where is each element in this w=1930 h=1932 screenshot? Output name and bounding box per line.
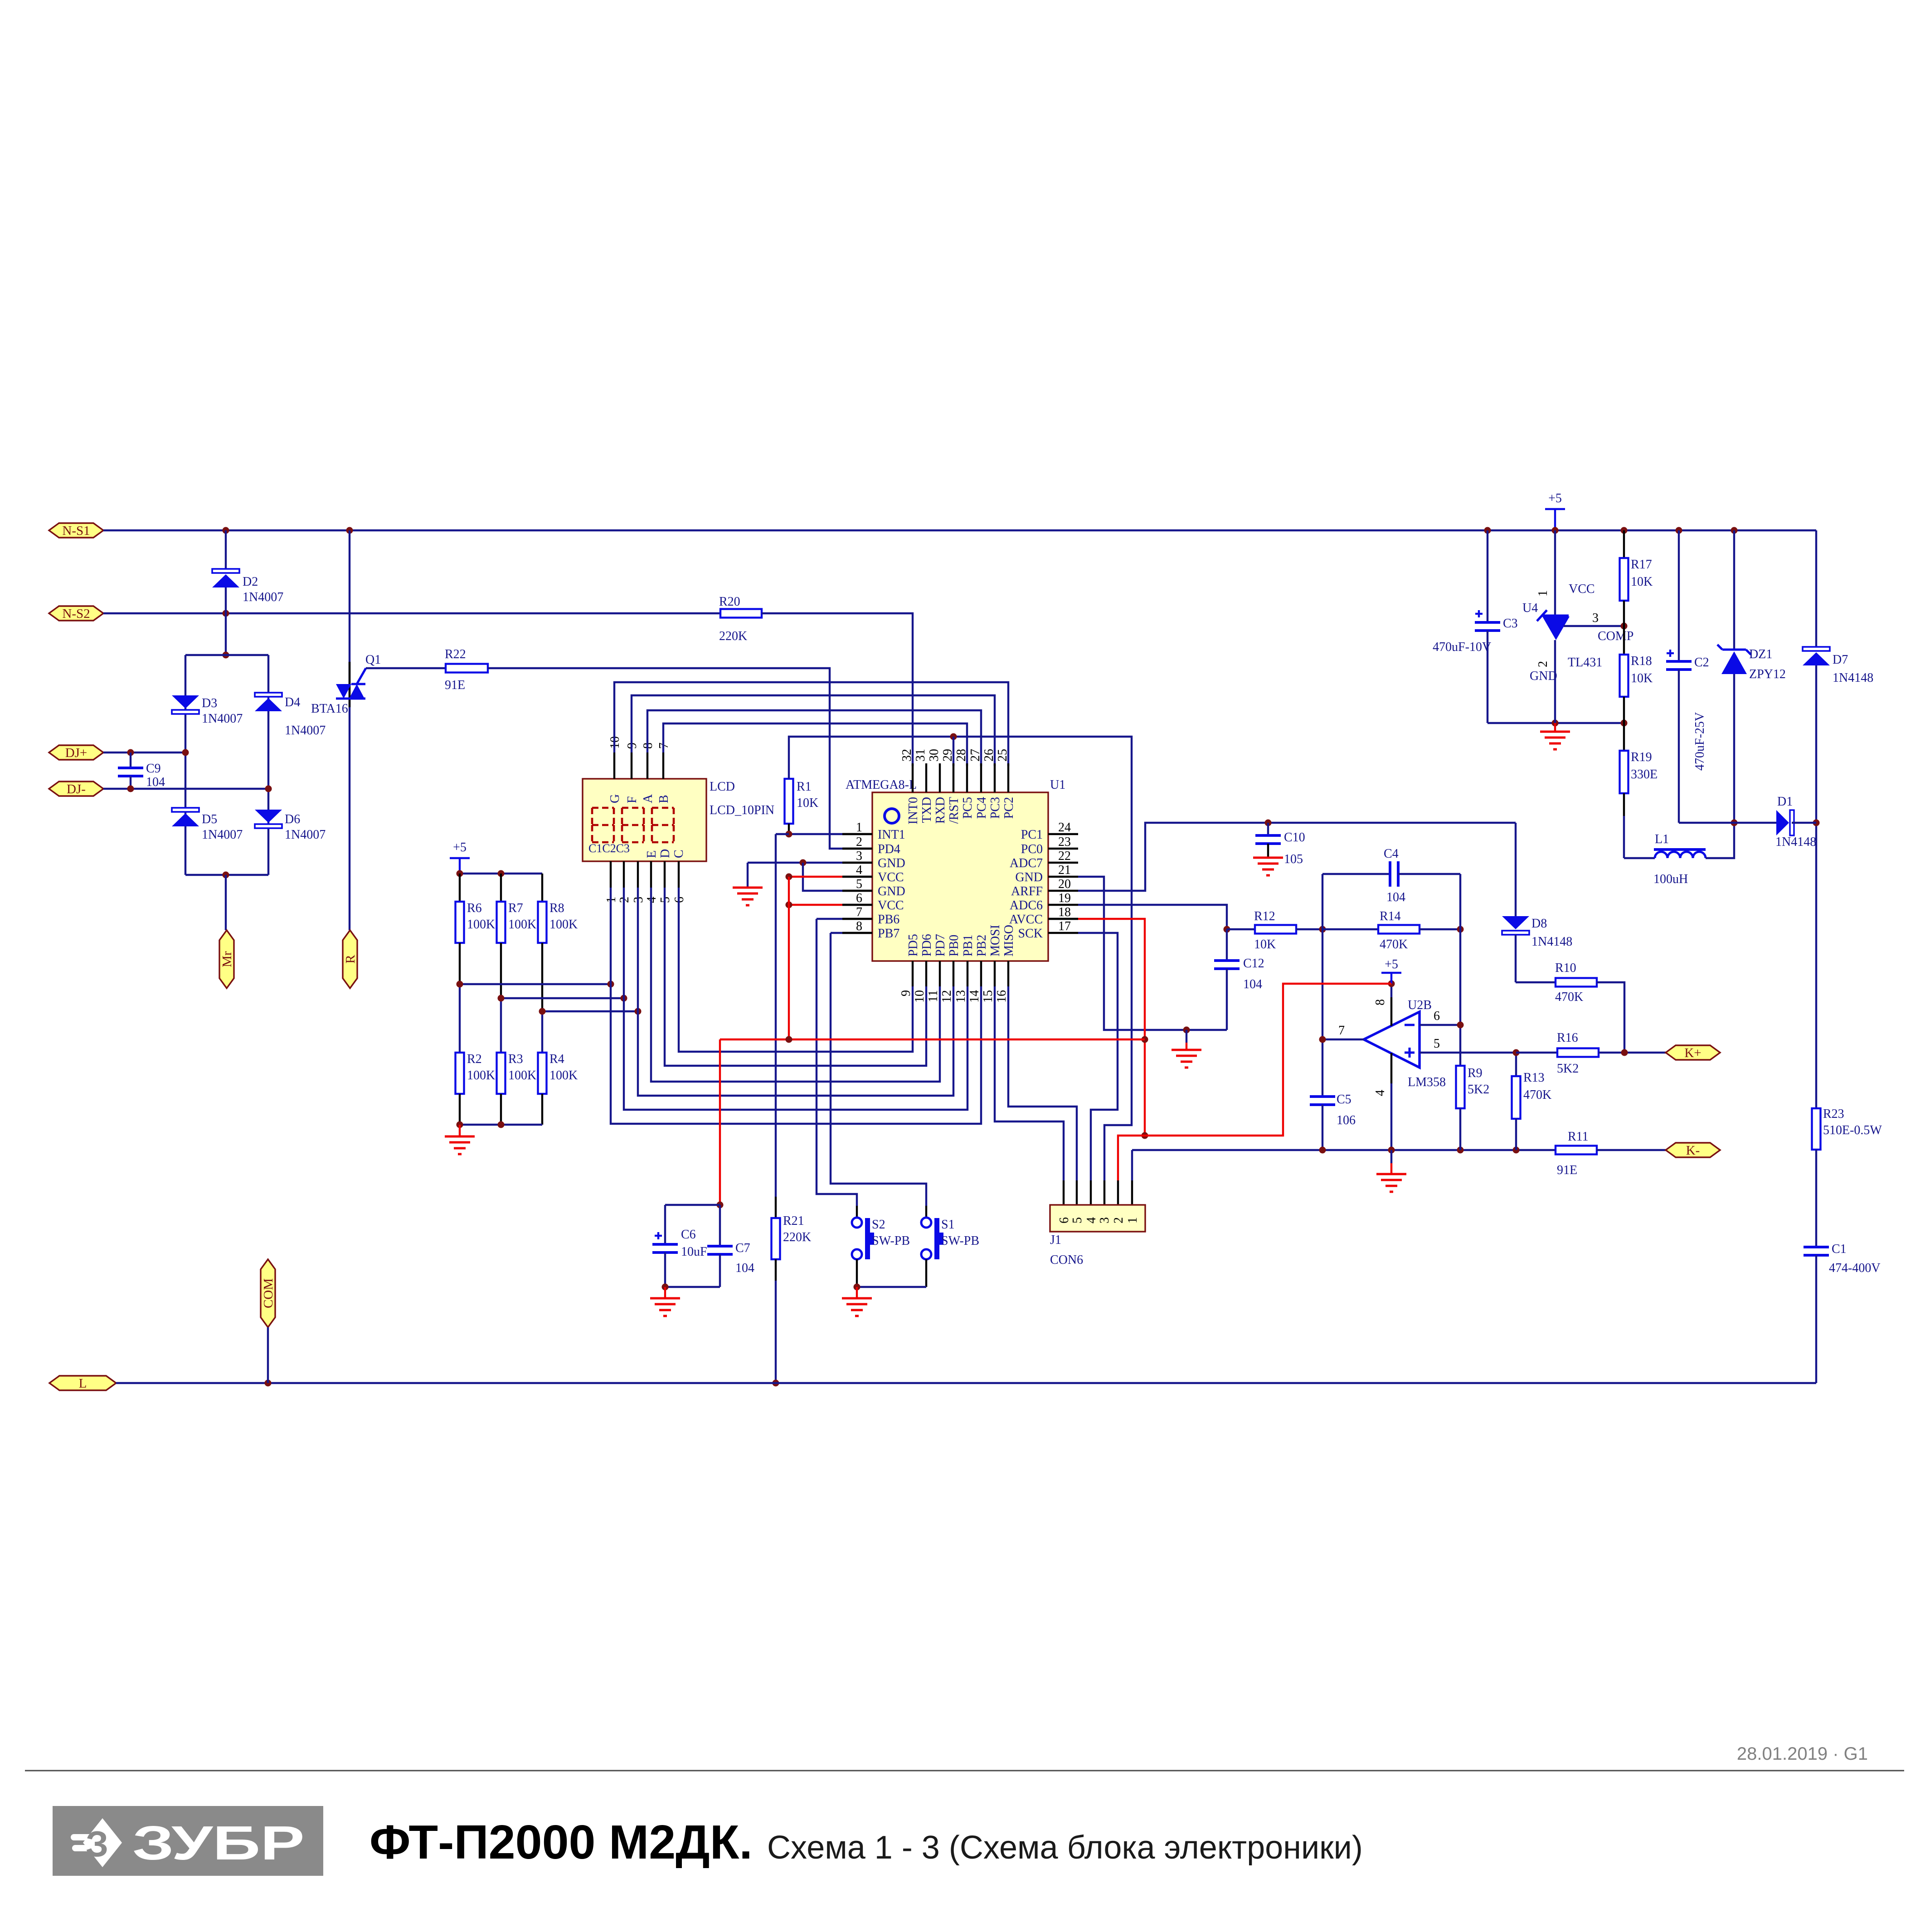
- svg-text:J1: J1: [1050, 1233, 1061, 1247]
- svg-text:ADC7: ADC7: [1010, 856, 1043, 870]
- svg-text:29: 29: [941, 749, 955, 762]
- svg-text:27: 27: [968, 749, 982, 762]
- svg-text:100uH: 100uH: [1653, 872, 1688, 886]
- svg-text:5: 5: [856, 877, 862, 891]
- svg-text:PD5: PD5: [906, 934, 920, 956]
- svg-text:510E-0.5W: 510E-0.5W: [1823, 1123, 1882, 1137]
- svg-text:R11: R11: [1568, 1130, 1589, 1144]
- svg-text:R19: R19: [1631, 750, 1652, 764]
- svg-text:K-: K-: [1686, 1143, 1700, 1158]
- svg-text:R22: R22: [445, 647, 466, 661]
- svg-text:A: A: [641, 794, 655, 803]
- svg-text:220K: 220K: [783, 1230, 811, 1244]
- svg-text:100K: 100K: [467, 1068, 495, 1083]
- svg-text:1N4007: 1N4007: [202, 828, 243, 842]
- svg-text:PC5: PC5: [961, 797, 975, 819]
- svg-text:14: 14: [967, 990, 982, 1003]
- svg-text:R9: R9: [1468, 1066, 1483, 1080]
- svg-text:PB6: PB6: [878, 913, 899, 927]
- svg-text:C9: C9: [146, 762, 161, 776]
- svg-text:R3: R3: [508, 1052, 523, 1066]
- svg-text:31: 31: [914, 749, 928, 762]
- svg-text:104: 104: [146, 775, 165, 789]
- svg-text:R2: R2: [467, 1052, 482, 1066]
- svg-text:D6: D6: [285, 812, 300, 826]
- svg-text:D: D: [658, 849, 672, 858]
- svg-text:SW-PB: SW-PB: [941, 1234, 979, 1248]
- svg-text:100K: 100K: [508, 917, 536, 932]
- svg-text:C1C2C3: C1C2C3: [588, 842, 630, 855]
- svg-text:CON6: CON6: [1050, 1253, 1083, 1267]
- svg-text:TL431: TL431: [1568, 655, 1602, 670]
- svg-text:1: 1: [1536, 590, 1550, 597]
- svg-text:R21: R21: [783, 1214, 804, 1228]
- svg-text:ФТ-П2000 М2ДК.: ФТ-П2000 М2ДК.: [369, 1815, 753, 1869]
- svg-text:7: 7: [1338, 1024, 1345, 1038]
- svg-text:91E: 91E: [445, 678, 465, 692]
- svg-text:16: 16: [995, 990, 1009, 1003]
- svg-text:C12: C12: [1243, 956, 1264, 971]
- svg-text:30: 30: [927, 749, 941, 762]
- svg-text:SCK: SCK: [1018, 927, 1043, 941]
- svg-text:104: 104: [735, 1261, 754, 1275]
- svg-text:S2: S2: [872, 1218, 885, 1232]
- svg-text:Q1: Q1: [365, 653, 381, 667]
- svg-text:106: 106: [1337, 1113, 1356, 1127]
- svg-text:C10: C10: [1284, 830, 1305, 845]
- svg-text:2: 2: [856, 835, 862, 849]
- svg-text:C5: C5: [1337, 1092, 1351, 1107]
- svg-text:PB7: PB7: [878, 927, 899, 941]
- svg-text:2: 2: [1112, 1217, 1126, 1223]
- svg-text:D3: D3: [202, 696, 217, 710]
- svg-text:C4: C4: [1384, 847, 1399, 861]
- svg-text:105: 105: [1284, 852, 1303, 866]
- svg-text:474-400V: 474-400V: [1829, 1261, 1881, 1275]
- svg-text:3: 3: [1592, 611, 1599, 625]
- svg-text:PC0: PC0: [1021, 842, 1043, 856]
- svg-text:91E: 91E: [1557, 1163, 1577, 1177]
- svg-text:VCC: VCC: [878, 870, 904, 884]
- svg-text:ЗУБР: ЗУБР: [132, 1816, 305, 1870]
- svg-text:28.01.2019 · G1: 28.01.2019 · G1: [1737, 1744, 1868, 1764]
- svg-text:SW-PB: SW-PB: [872, 1234, 910, 1248]
- svg-text:D4: D4: [285, 695, 300, 709]
- svg-text:6: 6: [1057, 1217, 1071, 1223]
- svg-text:MISO: MISO: [1002, 925, 1016, 956]
- svg-text:D8: D8: [1531, 917, 1547, 931]
- svg-text:PC3: PC3: [988, 797, 1002, 819]
- svg-text:U4: U4: [1522, 601, 1538, 615]
- svg-text:18: 18: [1058, 905, 1071, 919]
- svg-text:ADC6: ADC6: [1010, 898, 1043, 913]
- svg-text:C7: C7: [735, 1241, 750, 1255]
- svg-text:D7: D7: [1833, 653, 1848, 667]
- svg-text:U2B: U2B: [1408, 998, 1432, 1012]
- svg-text:23: 23: [1058, 835, 1071, 849]
- svg-text:MOSI: MOSI: [988, 925, 1002, 956]
- svg-text:22: 22: [1058, 849, 1071, 863]
- svg-text:10uF: 10uF: [681, 1245, 707, 1259]
- svg-text:1N4148: 1N4148: [1775, 835, 1816, 849]
- svg-text:1: 1: [856, 820, 862, 835]
- svg-text:N-S2: N-S2: [62, 607, 90, 621]
- svg-text:R12: R12: [1254, 909, 1275, 923]
- svg-text:5K2: 5K2: [1468, 1083, 1489, 1097]
- svg-text:PC4: PC4: [975, 797, 989, 819]
- svg-text:ARFF: ARFF: [1011, 884, 1043, 898]
- svg-text:S1: S1: [941, 1218, 955, 1232]
- svg-text:C1: C1: [1832, 1242, 1847, 1256]
- svg-text:10K: 10K: [1631, 671, 1653, 685]
- svg-text:D1: D1: [1777, 795, 1793, 809]
- svg-text:26: 26: [982, 749, 996, 762]
- svg-text:R8: R8: [549, 901, 564, 915]
- svg-text:D5: D5: [202, 812, 217, 826]
- svg-text:TXD: TXD: [920, 797, 934, 823]
- svg-text:PD7: PD7: [933, 934, 948, 956]
- svg-text:1N4007: 1N4007: [285, 723, 326, 738]
- svg-text:COM: COM: [261, 1278, 276, 1308]
- svg-text:1N4007: 1N4007: [285, 828, 326, 842]
- svg-text:LM358: LM358: [1408, 1075, 1446, 1089]
- svg-text:LCD_10PIN: LCD_10PIN: [710, 803, 774, 817]
- svg-text:C6: C6: [681, 1228, 696, 1242]
- svg-text:4: 4: [1373, 1090, 1387, 1096]
- svg-text:ATMEGA8-L: ATMEGA8-L: [846, 778, 917, 792]
- svg-text:3: 3: [1098, 1217, 1112, 1223]
- svg-text:100K: 100K: [549, 917, 578, 932]
- svg-text:C3: C3: [1503, 616, 1518, 631]
- svg-text:INT1: INT1: [878, 828, 905, 842]
- svg-text:PB2: PB2: [975, 935, 989, 956]
- svg-text:INT0: INT0: [906, 797, 920, 825]
- svg-text:PB0: PB0: [947, 935, 961, 956]
- svg-text:13: 13: [954, 990, 968, 1003]
- svg-text:GND: GND: [1530, 669, 1557, 683]
- svg-text:8: 8: [856, 919, 862, 933]
- svg-text:G: G: [608, 794, 622, 803]
- svg-text:10K: 10K: [1254, 937, 1276, 951]
- svg-text:/RST: /RST: [947, 797, 961, 824]
- svg-text:R13: R13: [1523, 1071, 1545, 1085]
- svg-text:220K: 220K: [719, 629, 747, 643]
- svg-text:ZPY12: ZPY12: [1749, 667, 1786, 681]
- svg-text:PD4: PD4: [878, 842, 900, 856]
- svg-text:104: 104: [1243, 977, 1262, 991]
- svg-text:R4: R4: [549, 1052, 564, 1066]
- svg-text:R6: R6: [467, 901, 482, 915]
- svg-text:1: 1: [1126, 1217, 1140, 1223]
- svg-text:1N4148: 1N4148: [1531, 935, 1572, 949]
- svg-text:330E: 330E: [1631, 767, 1658, 782]
- svg-text:PC1: PC1: [1021, 828, 1043, 842]
- svg-text:D2: D2: [243, 575, 258, 589]
- svg-text:Mr: Mr: [220, 951, 234, 967]
- svg-text:R14: R14: [1380, 909, 1401, 923]
- svg-text:5: 5: [1434, 1037, 1440, 1051]
- svg-text:DJ-: DJ-: [67, 782, 86, 796]
- svg-text:4: 4: [1084, 1217, 1099, 1223]
- svg-text:2: 2: [1536, 661, 1550, 667]
- svg-text:BTA16: BTA16: [311, 702, 348, 716]
- svg-text:12: 12: [940, 990, 954, 1003]
- svg-text:R17: R17: [1631, 558, 1652, 572]
- svg-text:K+: K+: [1684, 1046, 1701, 1060]
- svg-text:4: 4: [856, 863, 862, 877]
- svg-text:21: 21: [1058, 863, 1071, 877]
- svg-text:1N4148: 1N4148: [1833, 671, 1873, 685]
- svg-text:GND: GND: [878, 856, 905, 870]
- svg-text:25: 25: [996, 749, 1010, 762]
- svg-text:100K: 100K: [508, 1068, 536, 1083]
- svg-text:E: E: [645, 850, 659, 858]
- svg-text:AVCC: AVCC: [1009, 913, 1043, 927]
- svg-text:L: L: [79, 1376, 87, 1391]
- svg-text:R1: R1: [797, 780, 812, 794]
- svg-text:3: 3: [856, 849, 862, 863]
- svg-text:100K: 100K: [549, 1068, 578, 1083]
- svg-text:470K: 470K: [1555, 990, 1583, 1004]
- svg-text:20: 20: [1058, 877, 1071, 891]
- svg-text:R23: R23: [1823, 1107, 1844, 1121]
- svg-text:PB1: PB1: [961, 935, 975, 956]
- svg-text:5K2: 5K2: [1557, 1062, 1579, 1076]
- svg-text:DJ+: DJ+: [65, 746, 88, 760]
- svg-text:VCC: VCC: [878, 898, 904, 913]
- svg-text:6: 6: [1434, 1009, 1440, 1023]
- svg-text:+5: +5: [453, 840, 467, 854]
- svg-text:N-S1: N-S1: [62, 524, 90, 538]
- svg-text:VCC: VCC: [1569, 582, 1595, 596]
- svg-text:32: 32: [900, 749, 914, 762]
- svg-text:R: R: [343, 955, 358, 964]
- svg-text:R16: R16: [1557, 1031, 1578, 1045]
- svg-text:З: З: [86, 1824, 108, 1864]
- svg-text:R18: R18: [1631, 654, 1652, 668]
- svg-text:R7: R7: [508, 901, 523, 915]
- svg-text:R10: R10: [1555, 961, 1576, 975]
- svg-text:COMP: COMP: [1598, 629, 1633, 643]
- svg-text:470uF-10V: 470uF-10V: [1433, 640, 1491, 654]
- svg-text:1N4007: 1N4007: [243, 590, 283, 604]
- svg-text:PD6: PD6: [920, 934, 934, 956]
- svg-text:470K: 470K: [1523, 1088, 1551, 1102]
- svg-text:+5: +5: [1385, 957, 1398, 971]
- svg-text:F: F: [625, 796, 639, 803]
- svg-text:GND: GND: [878, 884, 905, 898]
- svg-text:10: 10: [913, 990, 927, 1003]
- svg-text:100K: 100K: [467, 917, 495, 932]
- svg-text:DZ1: DZ1: [1749, 647, 1772, 661]
- svg-text:LCD: LCD: [710, 780, 735, 794]
- svg-text:11: 11: [926, 990, 940, 1002]
- svg-text:10K: 10K: [797, 796, 818, 810]
- svg-text:6: 6: [856, 891, 862, 905]
- svg-text:L1: L1: [1655, 832, 1669, 846]
- svg-text:U1: U1: [1050, 778, 1065, 792]
- svg-text:+5: +5: [1548, 491, 1562, 505]
- svg-text:PC2: PC2: [1002, 797, 1016, 819]
- svg-text:R20: R20: [719, 595, 740, 609]
- svg-text:B: B: [657, 795, 671, 803]
- svg-text:8: 8: [1373, 999, 1387, 1005]
- svg-text:1N4007: 1N4007: [202, 712, 243, 726]
- svg-text:RXD: RXD: [933, 797, 948, 824]
- svg-text:15: 15: [981, 990, 995, 1003]
- svg-text:GND: GND: [1015, 870, 1043, 884]
- svg-text:17: 17: [1058, 919, 1071, 933]
- svg-text:C: C: [672, 849, 686, 858]
- svg-text:104: 104: [1386, 890, 1405, 904]
- svg-text:7: 7: [856, 905, 862, 919]
- svg-text:470K: 470K: [1380, 937, 1408, 951]
- svg-text:Схема 1 - 3 (Схема блока элект: Схема 1 - 3 (Схема блока электроники): [767, 1830, 1363, 1866]
- svg-text:19: 19: [1058, 891, 1071, 905]
- svg-text:470uF-25V: 470uF-25V: [1693, 712, 1707, 771]
- svg-text:24: 24: [1058, 820, 1071, 835]
- svg-text:9: 9: [899, 990, 913, 996]
- svg-text:C2: C2: [1694, 655, 1709, 670]
- svg-text:28: 28: [954, 749, 968, 762]
- svg-text:5: 5: [1070, 1217, 1084, 1223]
- svg-text:10K: 10K: [1631, 575, 1653, 589]
